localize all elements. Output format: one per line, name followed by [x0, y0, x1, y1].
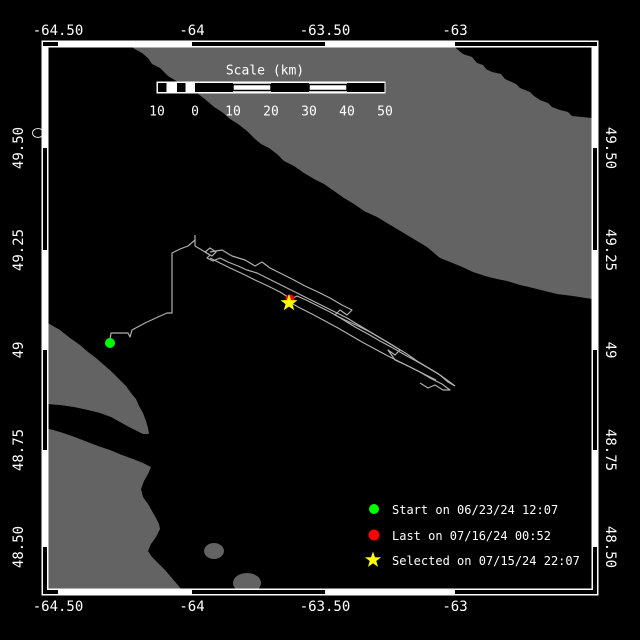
map-canvas[interactable]	[0, 0, 640, 640]
start-marker[interactable]	[105, 338, 115, 348]
legend-last-dot-icon	[369, 530, 380, 541]
scale-bar	[157, 82, 385, 93]
map-viewer: -64.50 -64 -63.50 -63 -64.50 -64 -63.50 …	[0, 0, 640, 640]
legend-start-dot-icon	[369, 504, 379, 514]
land-small-island-1	[204, 543, 224, 559]
